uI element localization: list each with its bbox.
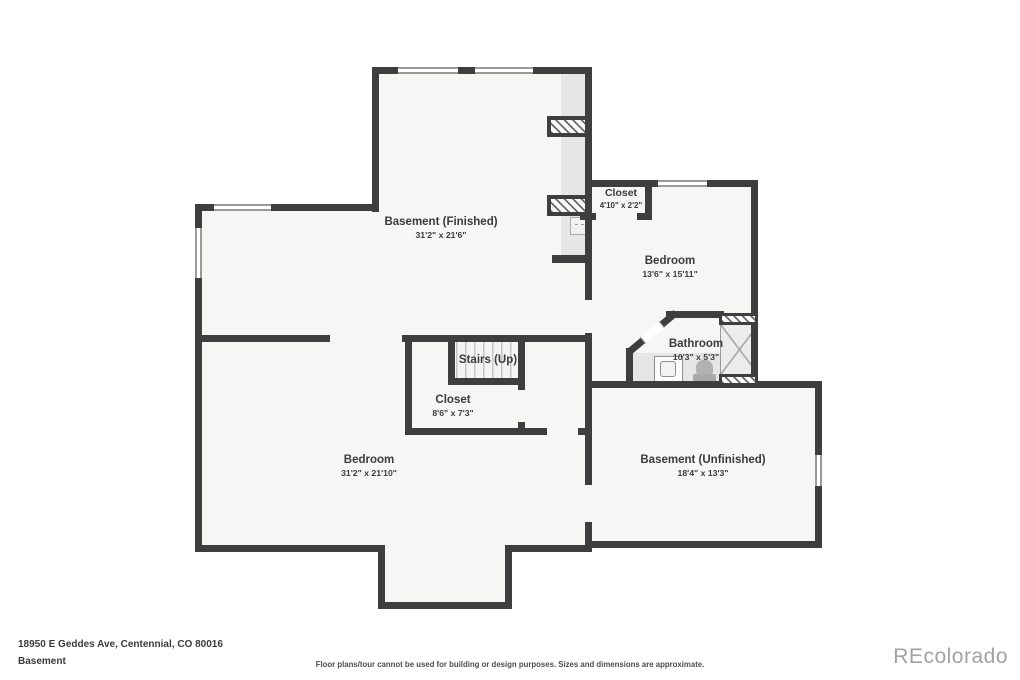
room-dims: 13'6" x 15'11" bbox=[642, 269, 697, 280]
room-label-closet-upper: Closet 4'10" x 2'2" bbox=[600, 187, 643, 211]
wall bbox=[378, 545, 385, 609]
room-label-bedroom-lower: Bedroom 31'2" x 21'10" bbox=[341, 454, 397, 479]
room-label-basement-unfinished: Basement (Unfinished) 18'4" x 13'3" bbox=[640, 454, 765, 479]
room-dims: 10'3" x 5'3" bbox=[669, 352, 723, 363]
wall bbox=[518, 422, 525, 435]
wall bbox=[195, 545, 385, 552]
window bbox=[475, 67, 533, 74]
room-label-closet-lower: Closet 8'6" x 7'3" bbox=[432, 394, 473, 419]
room-name: Basement (Unfinished) bbox=[640, 454, 765, 467]
floorplan-page: Basement (Finished) 31'2" x 21'6" Closet… bbox=[0, 0, 1020, 680]
chimney-hatch-block bbox=[547, 116, 589, 137]
room-fill-basement-finished-upper bbox=[375, 70, 589, 210]
room-name: Bathroom bbox=[669, 338, 723, 351]
window bbox=[195, 228, 202, 278]
shower-hatch-block bbox=[719, 313, 758, 325]
disclaimer-text: Floor plans/tour cannot be used for buil… bbox=[316, 660, 705, 669]
property-address: 18950 E Geddes Ave, Centennial, CO 80016 bbox=[18, 639, 223, 650]
room-name: Basement (Finished) bbox=[384, 216, 497, 229]
room-fill-bump-out bbox=[383, 545, 507, 605]
room-label-basement-finished: Basement (Finished) 31'2" x 21'6" bbox=[384, 216, 497, 241]
room-label-stairs: Stairs (Up) bbox=[459, 354, 517, 367]
wall bbox=[405, 428, 547, 435]
wall bbox=[751, 180, 758, 386]
window bbox=[658, 180, 707, 187]
wall bbox=[505, 545, 512, 609]
wall bbox=[378, 602, 512, 609]
room-name: Closet bbox=[432, 394, 473, 407]
chimney-hatch-block bbox=[547, 195, 589, 216]
sink-fixture bbox=[660, 361, 676, 377]
wall bbox=[585, 333, 592, 485]
wall bbox=[637, 213, 652, 220]
wall bbox=[195, 335, 330, 342]
room-name: Bedroom bbox=[341, 454, 397, 467]
floor-level-label: Basement bbox=[18, 656, 66, 667]
wall bbox=[512, 545, 592, 552]
room-dims: 4'10" x 2'2" bbox=[600, 200, 643, 211]
toilet-fixture bbox=[693, 360, 717, 383]
room-dims: 18'4" x 13'3" bbox=[640, 468, 765, 479]
room-dims: 8'6" x 7'3" bbox=[432, 408, 473, 419]
wall bbox=[585, 381, 822, 388]
window bbox=[815, 455, 822, 486]
wall bbox=[448, 378, 525, 385]
room-name: Stairs (Up) bbox=[459, 354, 517, 367]
wall bbox=[552, 255, 592, 263]
wall bbox=[518, 335, 525, 390]
room-label-bedroom-upper: Bedroom 13'6" x 15'11" bbox=[642, 255, 697, 280]
wall bbox=[372, 67, 379, 212]
wall bbox=[402, 335, 592, 342]
room-dims: 31'2" x 21'6" bbox=[384, 230, 497, 241]
room-name: Closet bbox=[600, 187, 643, 199]
room-fill-bedroom-lower bbox=[198, 338, 589, 549]
wall bbox=[405, 335, 412, 435]
room-label-bathroom: Bathroom 10'3" x 5'3" bbox=[669, 338, 723, 363]
shower-hatch-block bbox=[719, 374, 758, 386]
room-dims: 31'2" x 21'10" bbox=[341, 468, 397, 479]
recolorado-watermark: REcolorado bbox=[893, 645, 1008, 669]
wall bbox=[585, 541, 822, 548]
window bbox=[398, 67, 458, 74]
window bbox=[214, 204, 271, 211]
room-name: Bedroom bbox=[642, 255, 697, 268]
